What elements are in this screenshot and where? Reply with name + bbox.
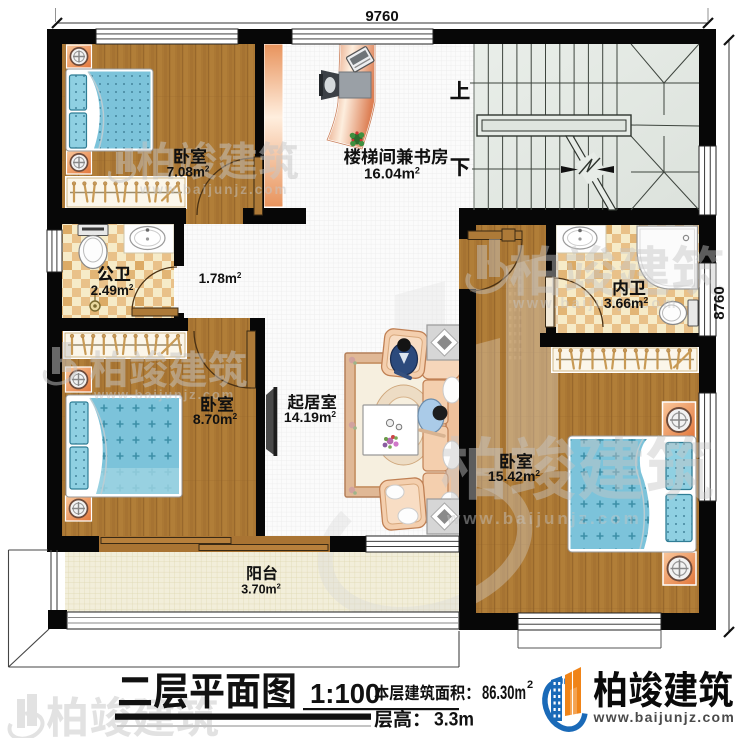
svg-text:1:100: 1:100: [310, 678, 380, 709]
svg-text:7.08m2: 7.08m2: [167, 165, 210, 180]
svg-text:16.04m2: 16.04m2: [364, 166, 420, 183]
svg-text:www.baijunjz.com: www.baijunjz.com: [139, 182, 289, 197]
svg-text:www.baijunjz.com: www.baijunjz.com: [593, 709, 736, 725]
svg-text:14.19m2: 14.19m2: [284, 409, 336, 425]
svg-text:8760: 8760: [711, 286, 728, 319]
svg-text:9760: 9760: [365, 8, 398, 25]
svg-text:3.3m: 3.3m: [434, 710, 474, 731]
svg-text:15.42m2: 15.42m2: [488, 468, 540, 484]
svg-text:www.baijunjz.com: www.baijunjz.com: [512, 296, 678, 312]
svg-text:3.66m2: 3.66m2: [604, 295, 649, 311]
svg-text:3.70m2: 3.70m2: [241, 582, 281, 597]
svg-text:8.70m2: 8.70m2: [193, 411, 238, 427]
svg-text:2: 2: [527, 679, 533, 691]
svg-text:2.49m2: 2.49m2: [91, 283, 134, 298]
svg-text:www.baijunjz.com: www.baijunjz.com: [446, 509, 642, 528]
svg-text:www.baijunjz.com: www.baijunjz.com: [93, 387, 235, 402]
svg-text:86.30m: 86.30m: [482, 683, 526, 704]
svg-text:1.78m2: 1.78m2: [199, 271, 242, 286]
